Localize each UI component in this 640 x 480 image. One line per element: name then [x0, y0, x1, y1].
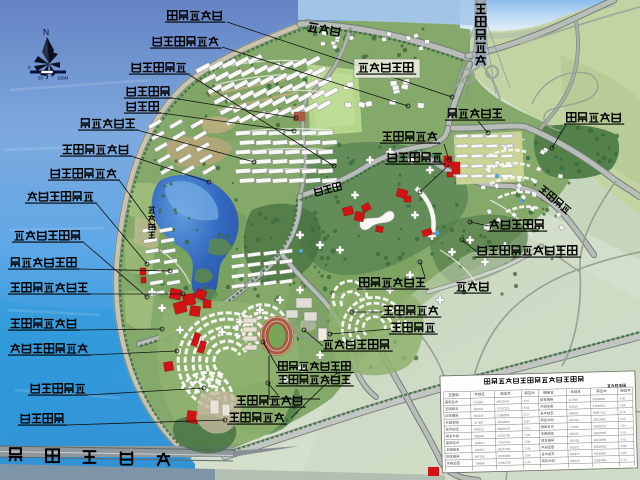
svg-text:65030952: 65030952 — [593, 397, 606, 401]
svg-text:920120: 920120 — [475, 448, 485, 452]
svg-text:150M: 150M — [57, 76, 69, 81]
svg-text:6.27: 6.27 — [524, 412, 530, 416]
svg-text:6.73: 6.73 — [620, 410, 626, 414]
svg-text:03087150: 03087150 — [593, 410, 606, 414]
svg-text:665422: 665422 — [570, 459, 580, 463]
svg-text:988288: 988288 — [474, 434, 484, 438]
svg-text:620756: 620756 — [569, 418, 579, 422]
svg-text:02630276: 02630276 — [593, 424, 606, 428]
svg-text:29613846: 29613846 — [593, 417, 606, 421]
svg-text:1.39: 1.39 — [525, 440, 531, 444]
svg-text:96535047: 96535047 — [594, 451, 607, 455]
svg-text:N: N — [43, 27, 49, 37]
svg-text:708969: 708969 — [475, 461, 485, 465]
svg-text:27361706: 27361706 — [498, 461, 511, 465]
svg-text:9.35: 9.35 — [620, 396, 626, 400]
svg-text:94949515: 94949515 — [593, 404, 606, 408]
svg-text:8.13: 8.13 — [524, 426, 530, 430]
svg-text:6.58: 6.58 — [621, 444, 627, 448]
svg-text:26067848: 26067848 — [593, 431, 606, 435]
svg-text:91987811: 91987811 — [594, 458, 607, 462]
svg-text:005672: 005672 — [570, 452, 580, 456]
svg-text:911160: 911160 — [569, 404, 578, 408]
svg-text:4.84: 4.84 — [620, 403, 626, 407]
svg-text:5.41: 5.41 — [621, 437, 627, 441]
svg-text:428519: 428519 — [475, 441, 485, 445]
svg-text:117608: 117608 — [569, 398, 579, 402]
svg-text:40765382: 40765382 — [498, 454, 511, 458]
svg-text:066023: 066023 — [569, 411, 579, 415]
svg-text:1.64: 1.64 — [620, 424, 626, 428]
svg-text:92912869: 92912869 — [594, 438, 607, 442]
svg-text:71497004: 71497004 — [498, 440, 511, 444]
svg-text:502512: 502512 — [570, 445, 580, 449]
svg-text:33659389: 33659389 — [594, 444, 607, 448]
svg-text:29247490: 29247490 — [498, 447, 511, 451]
svg-text:410946: 410946 — [474, 400, 484, 404]
svg-text:43118828: 43118828 — [497, 420, 510, 424]
svg-text:44130760: 44130760 — [497, 433, 510, 437]
svg-text:7.96: 7.96 — [524, 433, 530, 437]
svg-text:594591: 594591 — [474, 407, 484, 411]
svg-text:774056: 774056 — [569, 425, 579, 429]
svg-text:4.16: 4.16 — [620, 430, 626, 434]
svg-text:17358291: 17358291 — [497, 413, 510, 417]
svg-text:3.97: 3.97 — [524, 399, 530, 403]
svg-text:8.34: 8.34 — [524, 419, 530, 423]
svg-text:6.40: 6.40 — [525, 460, 531, 464]
svg-text:50: 50 — [38, 76, 44, 81]
svg-text:804102: 804102 — [474, 427, 484, 431]
svg-text:565445: 565445 — [569, 432, 579, 436]
svg-text:147837: 147837 — [474, 420, 484, 424]
svg-text:061435: 061435 — [570, 438, 580, 442]
svg-text:2.65: 2.65 — [621, 451, 627, 455]
svg-text:6.72: 6.72 — [621, 458, 627, 462]
svg-text:3.56: 3.56 — [525, 453, 531, 457]
svg-text:8.58: 8.58 — [524, 406, 530, 410]
svg-text:0.99: 0.99 — [525, 446, 531, 450]
svg-text:834219: 834219 — [474, 414, 484, 418]
svg-text:68523470: 68523470 — [497, 399, 510, 403]
svg-text:58632158: 58632158 — [497, 427, 510, 431]
svg-text:72797222: 72797222 — [497, 406, 510, 410]
svg-text:6.48: 6.48 — [620, 417, 626, 421]
svg-text:847256: 847256 — [475, 454, 485, 458]
